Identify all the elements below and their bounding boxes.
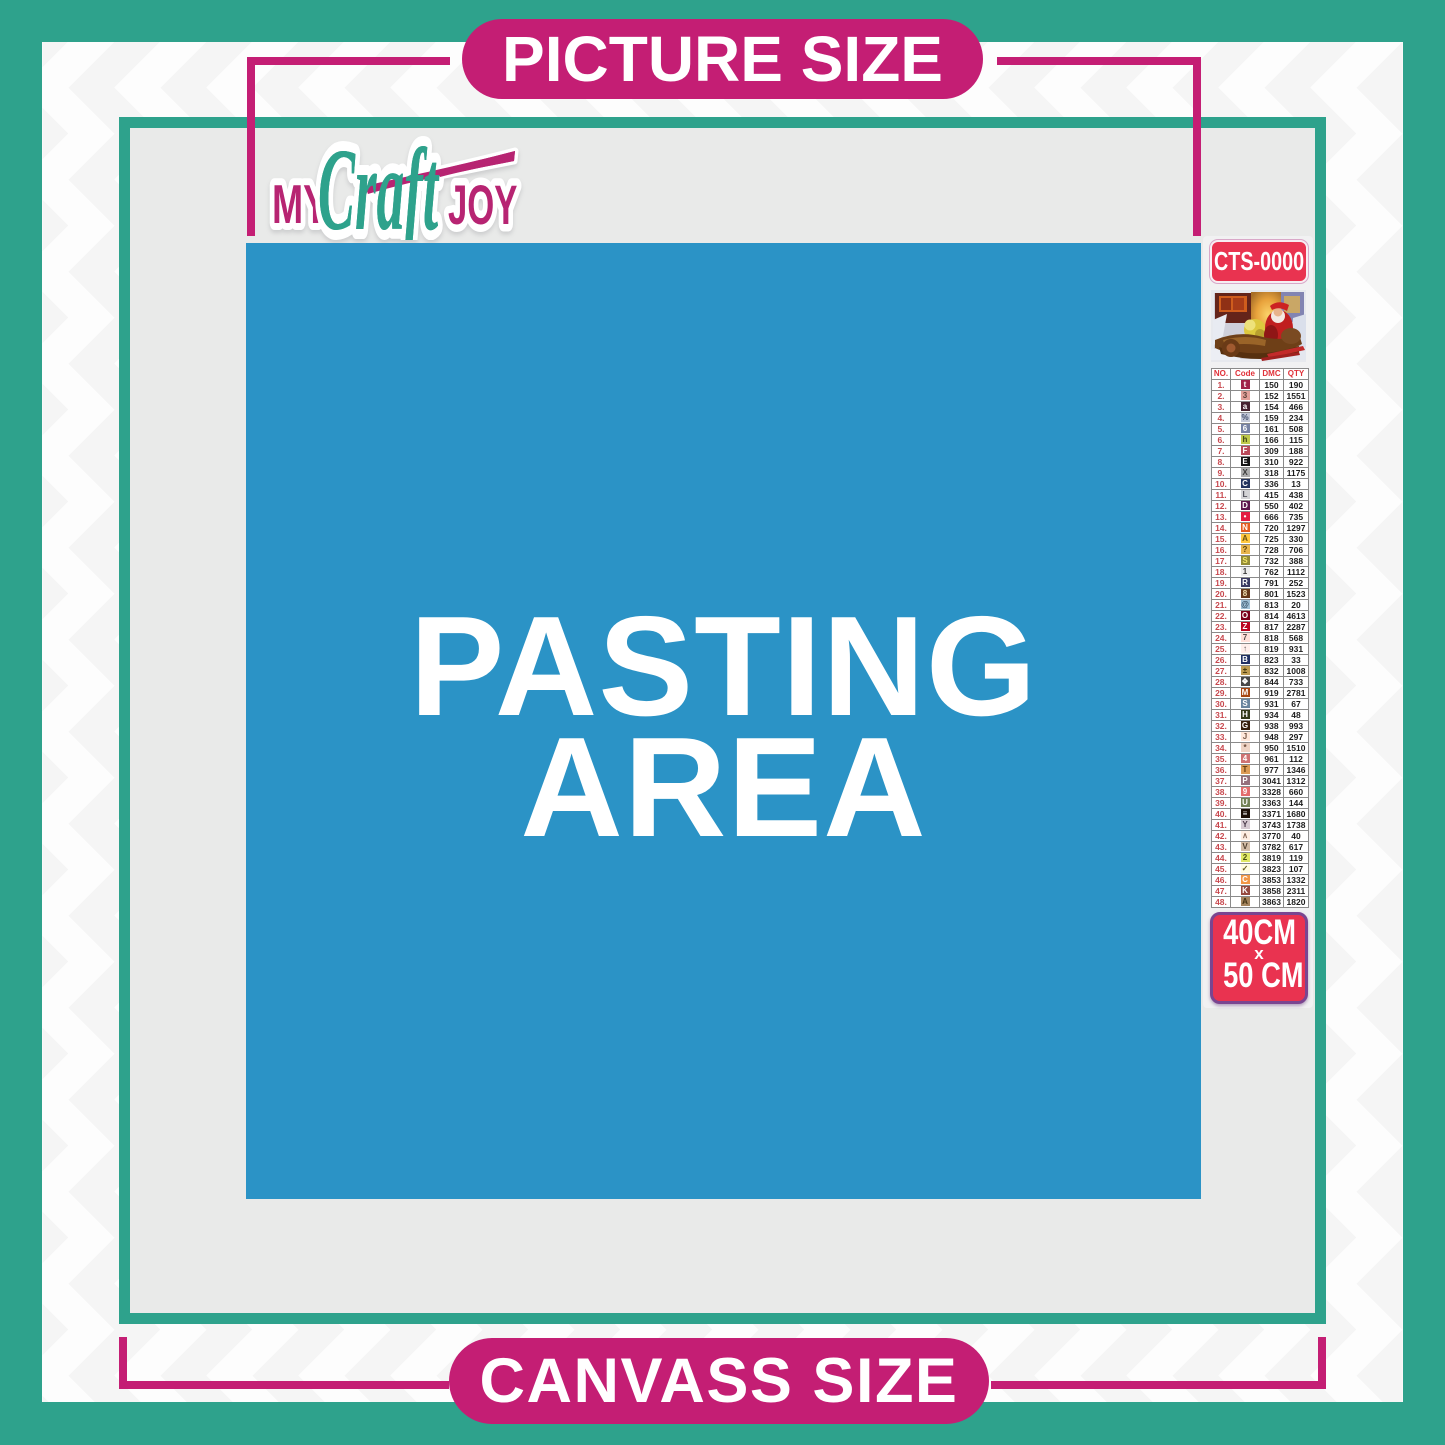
svg-text:JOY: JOY [448, 174, 517, 237]
svg-text:Craft: Craft [318, 132, 440, 240]
